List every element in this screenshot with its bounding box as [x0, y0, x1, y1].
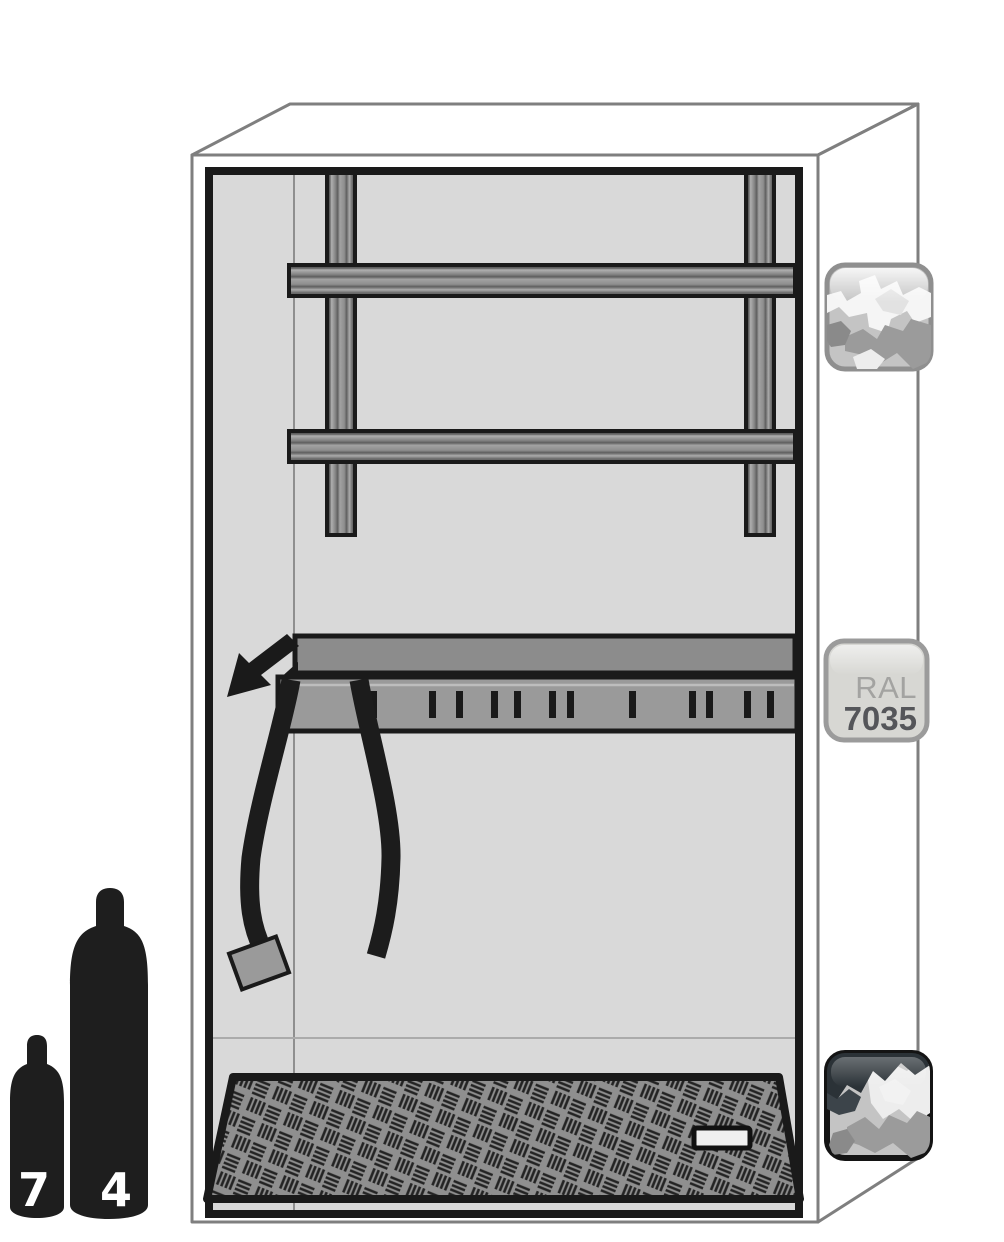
cabinet-top-face	[192, 104, 918, 155]
cabinet-drawing: RAL 7035 7 4	[0, 0, 1004, 1242]
material-swatch-bottom	[827, 1053, 930, 1158]
material-swatch-top	[827, 265, 931, 369]
ral-code: 7035	[844, 700, 917, 737]
shelf-top-band	[295, 636, 795, 673]
ral-7035-swatch: RAL 7035	[826, 641, 927, 740]
mounting-rail-right	[746, 173, 774, 535]
cylinder-small-badge: 7	[18, 1163, 50, 1217]
loading-ramp	[190, 1060, 820, 1220]
mounting-rail-left	[327, 173, 355, 535]
ramp-handle-slot	[694, 1128, 750, 1148]
product-illustration: RAL 7035 7 4	[0, 0, 1004, 1242]
clamping-bar-top	[289, 265, 795, 296]
cylinder-large-badge: 4	[100, 1163, 132, 1217]
clamping-bar-bottom	[289, 431, 795, 462]
